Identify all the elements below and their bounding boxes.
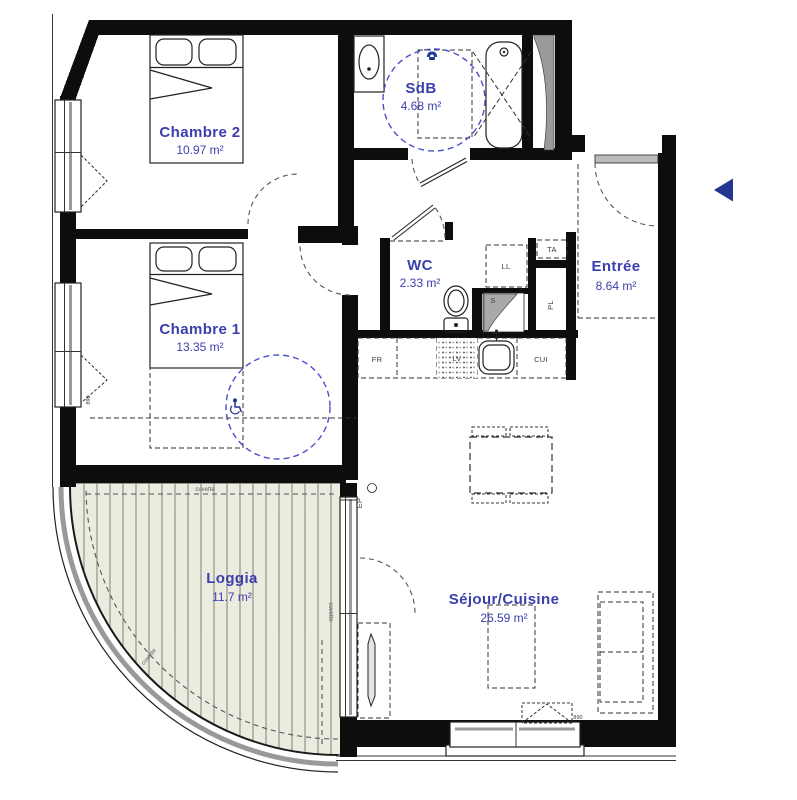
tap-icon [427, 52, 437, 61]
wall-ch1-ch2 [76, 229, 248, 239]
wheelchair-icon [231, 398, 242, 413]
washing-machine-label: LL [502, 262, 511, 271]
gutter-label-top: cuvette [195, 487, 215, 493]
duct-s-label: S [490, 296, 495, 305]
floor-plan: 890 890 [0, 0, 797, 800]
room-label-chambre1: Chambre 1 [159, 321, 240, 338]
room-area-chambre2: 10.97 m² [176, 143, 223, 157]
duct-s: S [483, 293, 524, 332]
sdb-door [412, 158, 467, 187]
wall-topright-v [555, 20, 572, 152]
wall-right [658, 150, 676, 747]
toilet-button [454, 323, 458, 327]
wall-ch1-ch2-chunk [298, 226, 358, 243]
wall-wc-stub [445, 222, 453, 240]
wall-tub-side [522, 33, 533, 153]
window-dim-label: 890 [86, 395, 92, 404]
fridge-label: FR [372, 355, 383, 364]
room-area-sdb: 4.68 m² [401, 99, 442, 113]
loggia-deck [53, 483, 344, 772]
chambre2-door [248, 174, 298, 224]
room-label-chambre2: Chambre 2 [159, 124, 240, 141]
room-area-entree: 8.64 m² [596, 279, 637, 293]
room-area-chambre1: 13.35 m² [176, 340, 223, 354]
floor-plan-drawing: 890 890 [0, 0, 797, 800]
room-area-loggia: 11.7 m² [212, 590, 252, 604]
room-label-sdb: SdB [405, 80, 436, 97]
cooker-label: CUI [534, 355, 548, 364]
room-label-wc: WC [407, 257, 433, 274]
turning-circle-chambre1 [226, 355, 330, 459]
rain-pipe-label: EP [355, 498, 364, 509]
electrical-board-label: TA [547, 245, 557, 254]
chambre1-clear-zone [150, 368, 243, 448]
room-label-loggia: Loggia [206, 570, 258, 587]
sofa [598, 592, 653, 713]
loggia-deck-surface [70, 483, 344, 755]
window-chambre1: 890 [55, 283, 107, 407]
room-label-sejour: Séjour/Cuisine [449, 591, 560, 608]
dining-table [470, 427, 552, 503]
gutter-label-right: cuvette [327, 602, 333, 622]
sdb-duct [534, 35, 554, 150]
wc-fixtures [444, 286, 468, 332]
wc-door [390, 205, 445, 241]
window-sejour-dim: 890 [573, 715, 582, 721]
wall-wc-right [472, 288, 482, 337]
room-area-wc: 2.33 m² [400, 276, 441, 290]
dishwasher-label: LV [452, 354, 461, 363]
entrance-door [578, 155, 658, 318]
wall-wc-left [380, 238, 390, 337]
toilet-bowl-rim [448, 290, 464, 312]
bathtub [486, 42, 522, 148]
wall-loggia-top [60, 465, 346, 483]
washbasin [354, 36, 384, 92]
window-sejour: 890 [446, 703, 584, 756]
wall-closet-left [528, 238, 536, 330]
rain-pipe-icon [368, 484, 377, 493]
room-label-entree: Entrée [591, 258, 640, 275]
radiator [358, 623, 390, 718]
loggia-glass-door [340, 497, 415, 717]
wall-top [92, 20, 572, 35]
wall-ch2-sdb [338, 20, 354, 160]
window-chambre2 [55, 100, 107, 212]
entrance-arrow-icon [714, 179, 733, 202]
room-area-sejour: 26.59 m² [480, 611, 527, 625]
closet-label: PL [546, 300, 555, 310]
